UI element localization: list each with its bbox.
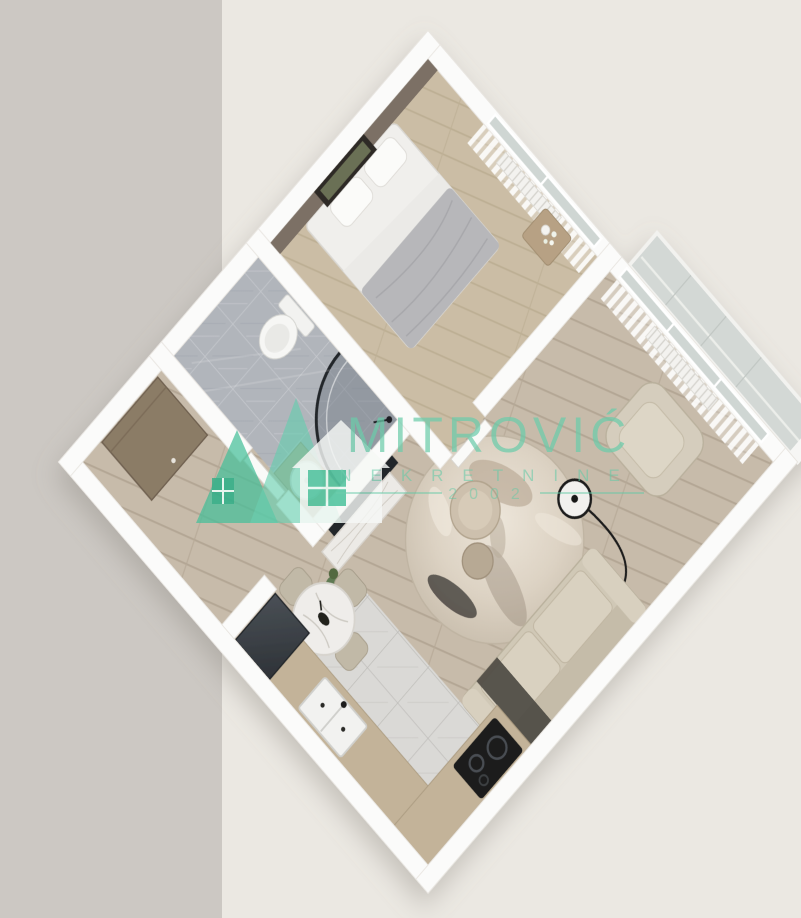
logo-window-small-icon (212, 478, 234, 504)
year-text: 2002 (448, 486, 532, 503)
floor-plan-render: MITROVIĆ NEKRETNINE 2002 (0, 0, 801, 918)
subtitle-text: NEKRETNINE (339, 466, 639, 485)
brand-text: MITROVIĆ (347, 407, 631, 463)
screenshot-root: MITROVIĆ NEKRETNINE 2002 (0, 0, 801, 918)
